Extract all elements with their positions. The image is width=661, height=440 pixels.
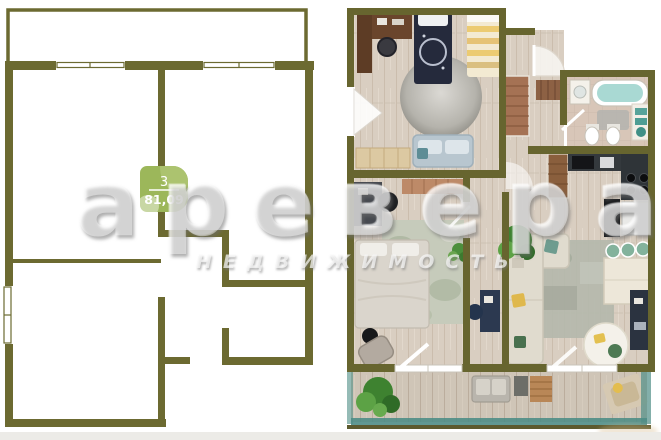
hall-wardrobe (505, 76, 529, 136)
desk-chair (378, 38, 396, 56)
kids-bed-navy (414, 11, 452, 84)
window-left (4, 287, 11, 343)
kitchen-wardrobe (548, 154, 568, 198)
floor-plan-3d (346, 8, 655, 429)
right-wall-2d (305, 61, 313, 365)
washbasin (570, 80, 590, 104)
kids-sofa (413, 135, 473, 167)
window-top-left (57, 63, 124, 68)
kids-shelf (356, 148, 410, 168)
kids-bed-yellow (467, 13, 501, 77)
doormat (536, 80, 562, 100)
window-top-right (204, 63, 274, 68)
rooms-count: 3 (160, 175, 168, 190)
area-badge: 3 81,09 (137, 166, 188, 217)
glass-railing-right (641, 372, 651, 424)
kitchen-appliance (604, 199, 620, 237)
window-living-balcony (547, 365, 617, 372)
balcony-outline-2d (8, 10, 306, 65)
bar-stool (606, 244, 620, 258)
page-footer-strip (0, 432, 661, 440)
balcony-steps (530, 376, 552, 402)
master-bed (355, 240, 429, 328)
fridge (622, 202, 651, 235)
floor-plan-2d: 3 81,09 (3, 10, 315, 427)
balcony-mat (514, 376, 528, 396)
glass-railing-front (351, 418, 647, 425)
interior-walls-2d (13, 65, 305, 427)
balcony-bench (472, 376, 510, 402)
round-lounge-rug (584, 323, 628, 367)
floorplans-canvas: 3 81,09 (0, 0, 661, 440)
bidet (606, 124, 620, 145)
floorplan-listing-image: 3 81,09 (0, 0, 661, 440)
master-dresser (402, 179, 464, 194)
bar-stool (621, 243, 635, 257)
area-value: 81,09 (144, 192, 184, 207)
corridor-floor (465, 150, 506, 366)
bottom-left-wall-2d (5, 419, 166, 427)
green-pouf (608, 344, 622, 358)
bar-stool (636, 242, 650, 256)
bath-cabinet (632, 104, 650, 140)
bottom-right-wall-2d (225, 357, 313, 365)
bathtub (592, 80, 648, 106)
left-wall-2d (3, 61, 16, 427)
glass-railing-left (347, 372, 353, 424)
toilet (585, 124, 599, 145)
